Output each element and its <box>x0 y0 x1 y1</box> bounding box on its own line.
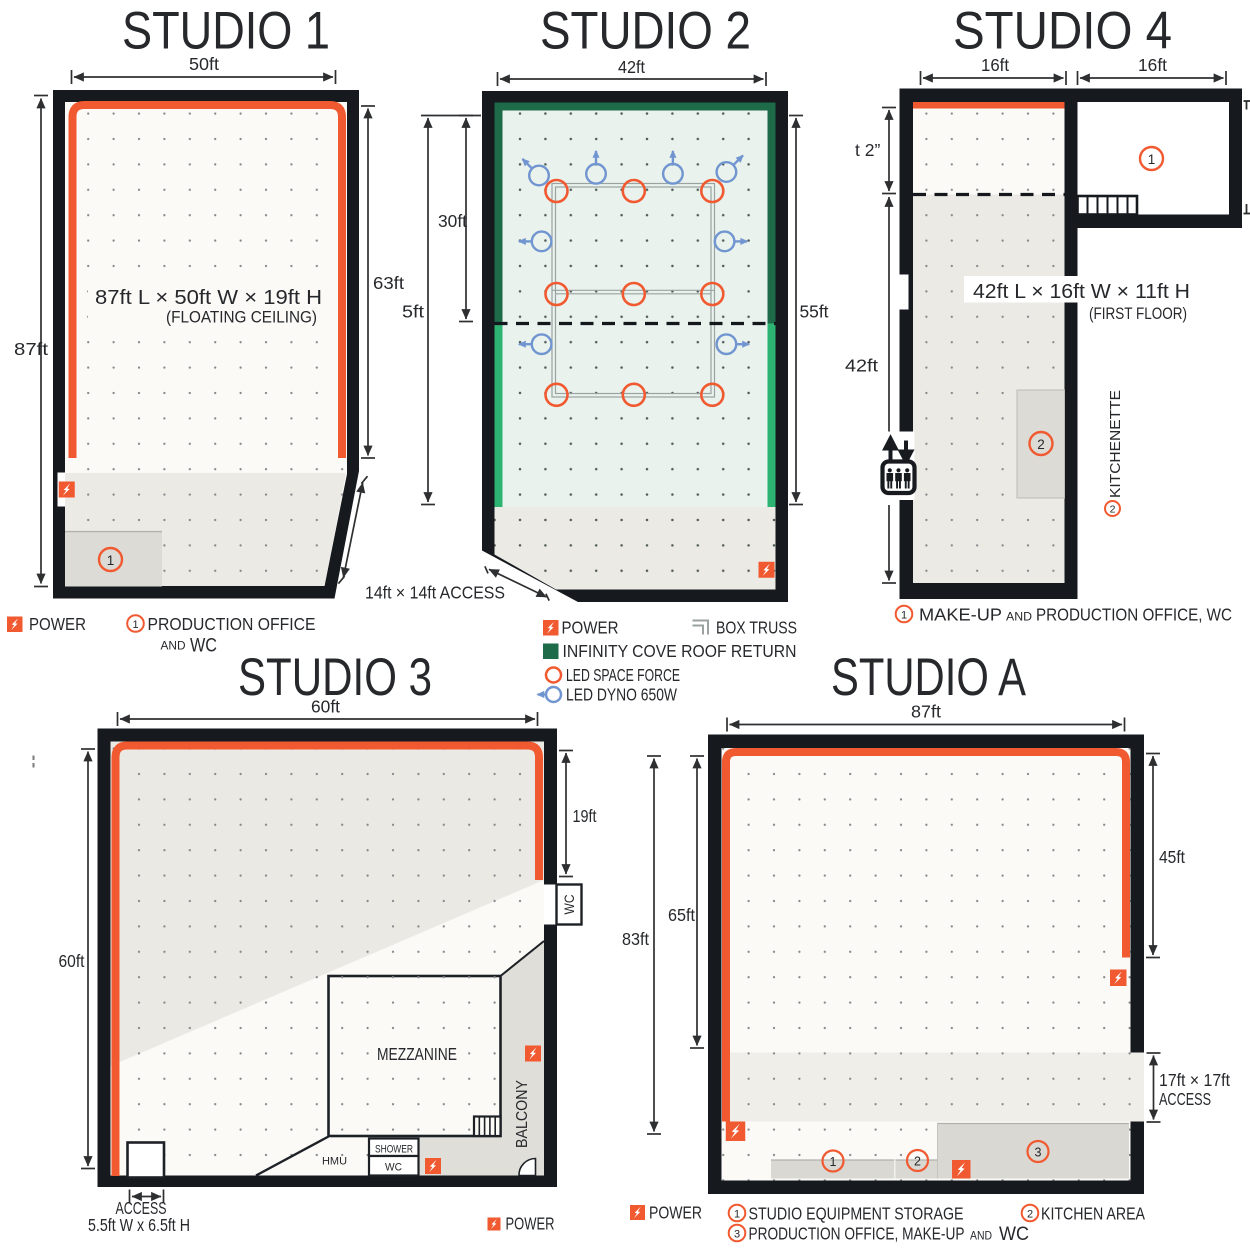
svg-text:POWER: POWER <box>649 1203 702 1223</box>
svg-text:(FLOATING CEILING): (FLOATING CEILING) <box>166 308 317 327</box>
svg-text:WC: WC <box>999 1224 1029 1245</box>
svg-text:1: 1 <box>734 1209 740 1221</box>
svg-text:5ft: 5ft <box>402 302 424 322</box>
svg-text:63ft: 63ft <box>373 273 404 293</box>
svg-text:PRODUCTION OFFICE, MAKE-UP: PRODUCTION OFFICE, MAKE-UP <box>749 1224 965 1244</box>
svg-text:POWER: POWER <box>506 1214 555 1234</box>
svg-text:42ft: 42ft <box>845 356 878 376</box>
svg-text:45ft: 45ft <box>1159 847 1185 867</box>
svg-text:83ft: 83ft <box>622 929 649 949</box>
svg-text:87ft: 87ft <box>14 339 48 359</box>
svg-text:60ft: 60ft <box>59 951 85 971</box>
svg-text:LED DYNO 650W: LED DYNO 650W <box>566 685 677 705</box>
svg-text:INFINITY COVE ROOF RETURN: INFINITY COVE ROOF RETURN <box>563 641 797 661</box>
svg-text:2: 2 <box>1037 437 1045 452</box>
svg-text:SHOWER: SHOWER <box>375 1144 413 1156</box>
svg-text:55ft: 55ft <box>800 302 829 322</box>
svg-text:MAKE-UP: MAKE-UP <box>919 605 1002 625</box>
svg-text:5.5ft W x 6.5ft H: 5.5ft W x 6.5ft H <box>88 1215 190 1235</box>
svg-text:3: 3 <box>734 1229 740 1241</box>
svg-text:WC: WC <box>190 636 217 657</box>
svg-text:50ft: 50ft <box>189 54 219 74</box>
svg-text:1: 1 <box>901 610 907 622</box>
svg-text:BALCONY: BALCONY <box>514 1080 531 1148</box>
svg-text:87ft: 87ft <box>911 702 941 722</box>
svg-text:KITCHENETTE: KITCHENETTE <box>1107 390 1124 498</box>
svg-text:2: 2 <box>914 1155 921 1169</box>
svg-text:STUDIO 1: STUDIO 1 <box>122 2 330 61</box>
svg-text:ACCESS: ACCESS <box>1159 1089 1211 1109</box>
svg-text:WC: WC <box>385 1162 402 1174</box>
svg-text:LED SPACE FORCE: LED SPACE FORCE <box>566 665 680 685</box>
svg-text:2: 2 <box>1027 1209 1033 1221</box>
svg-text:87ft L × 50ft W × 19ft H: 87ft L × 50ft W × 19ft H <box>95 287 322 309</box>
svg-text:16ft: 16ft <box>1138 55 1167 75</box>
svg-text:2: 2 <box>1110 504 1116 516</box>
svg-text:1: 1 <box>107 553 115 568</box>
svg-text:19ft: 19ft <box>573 806 597 826</box>
svg-text:16ft: 16ft <box>981 55 1009 75</box>
svg-text:30ft: 30ft <box>438 211 467 231</box>
svg-text:STUDIO EQUIPMENT STORAGE: STUDIO EQUIPMENT STORAGE <box>749 1204 964 1224</box>
svg-text:PRODUCTION OFFICE: PRODUCTION OFFICE <box>148 614 316 634</box>
svg-text:HMU: HMU <box>322 1156 347 1168</box>
svg-text:42ft L × 16ft W × 11ft H: 42ft L × 16ft W × 11ft H <box>973 281 1190 303</box>
svg-text:STUDIO 4: STUDIO 4 <box>953 2 1172 61</box>
svg-text:60ft: 60ft <box>311 697 340 717</box>
svg-text:STUDIO A: STUDIO A <box>831 648 1027 707</box>
svg-text:POWER: POWER <box>29 614 86 634</box>
svg-text:3: 3 <box>1035 1146 1042 1160</box>
svg-text:42ft: 42ft <box>618 57 645 77</box>
svg-text:AND: AND <box>161 639 186 653</box>
svg-text:PRODUCTION OFFICE, WC: PRODUCTION OFFICE, WC <box>1036 605 1232 625</box>
svg-text:1: 1 <box>830 1155 837 1169</box>
svg-text:65ft: 65ft <box>668 905 695 925</box>
svg-text:BOX TRUSS: BOX TRUSS <box>716 618 797 638</box>
svg-text:t 2”: t 2” <box>855 140 880 160</box>
svg-text:17ft × 17ft: 17ft × 17ft <box>1159 1070 1230 1090</box>
svg-text:KITCHEN AREA: KITCHEN AREA <box>1041 1204 1145 1224</box>
svg-text:MEZZANINE: MEZZANINE <box>377 1044 457 1064</box>
svg-text:AND: AND <box>970 1229 992 1243</box>
svg-text:AND: AND <box>1006 610 1032 624</box>
svg-text:STUDIO 2: STUDIO 2 <box>540 2 751 61</box>
svg-text:14ft × 14ft ACCESS: 14ft × 14ft ACCESS <box>365 583 505 603</box>
svg-text:POWER: POWER <box>562 618 619 638</box>
svg-text:(FIRST FLOOR): (FIRST FLOOR) <box>1089 305 1187 323</box>
svg-text:1: 1 <box>1148 152 1156 167</box>
svg-text:WC: WC <box>562 894 577 914</box>
svg-text:1: 1 <box>132 619 138 631</box>
